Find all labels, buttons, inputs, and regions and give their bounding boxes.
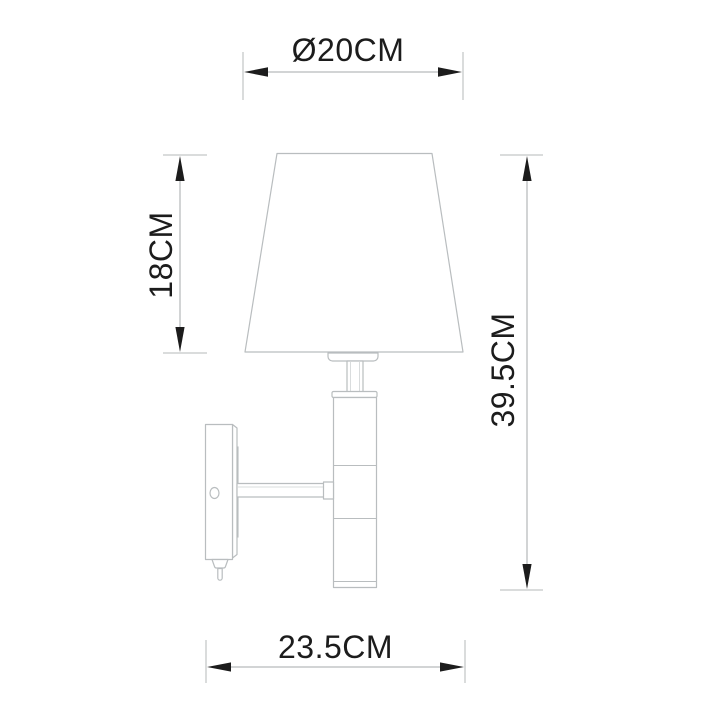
arm-connector: [324, 482, 334, 499]
switch-base: [212, 560, 228, 569]
lamp-shade: [245, 154, 463, 353]
dimension-drawing-canvas: Ø20CM 18CM 39.5CM 23.5CM: [0, 0, 715, 715]
lamp-column: [334, 398, 377, 588]
dim-label-shade-height: 18CM: [143, 155, 179, 355]
shade-collar: [328, 353, 378, 361]
switch-pull: [218, 569, 222, 581]
screw-hole: [210, 488, 219, 499]
column-top-cap: [332, 392, 377, 398]
lamp-stem: [347, 361, 363, 392]
diameter-arrow-left: [244, 67, 268, 76]
dim-label-diameter: Ø20CM: [238, 32, 458, 68]
wall-plate-side: [233, 425, 238, 559]
diameter-arrow-right: [438, 67, 462, 76]
mount-arm: [237, 484, 324, 498]
wall-lamp-line-drawing: [0, 0, 715, 715]
lamp-figure: [206, 154, 464, 588]
total-height-arrow-bottom: [522, 564, 531, 589]
dim-label-depth: 23.5CM: [206, 629, 465, 665]
dim-label-total-height: 39.5CM: [485, 270, 521, 470]
total-height-arrow-top: [522, 156, 531, 181]
